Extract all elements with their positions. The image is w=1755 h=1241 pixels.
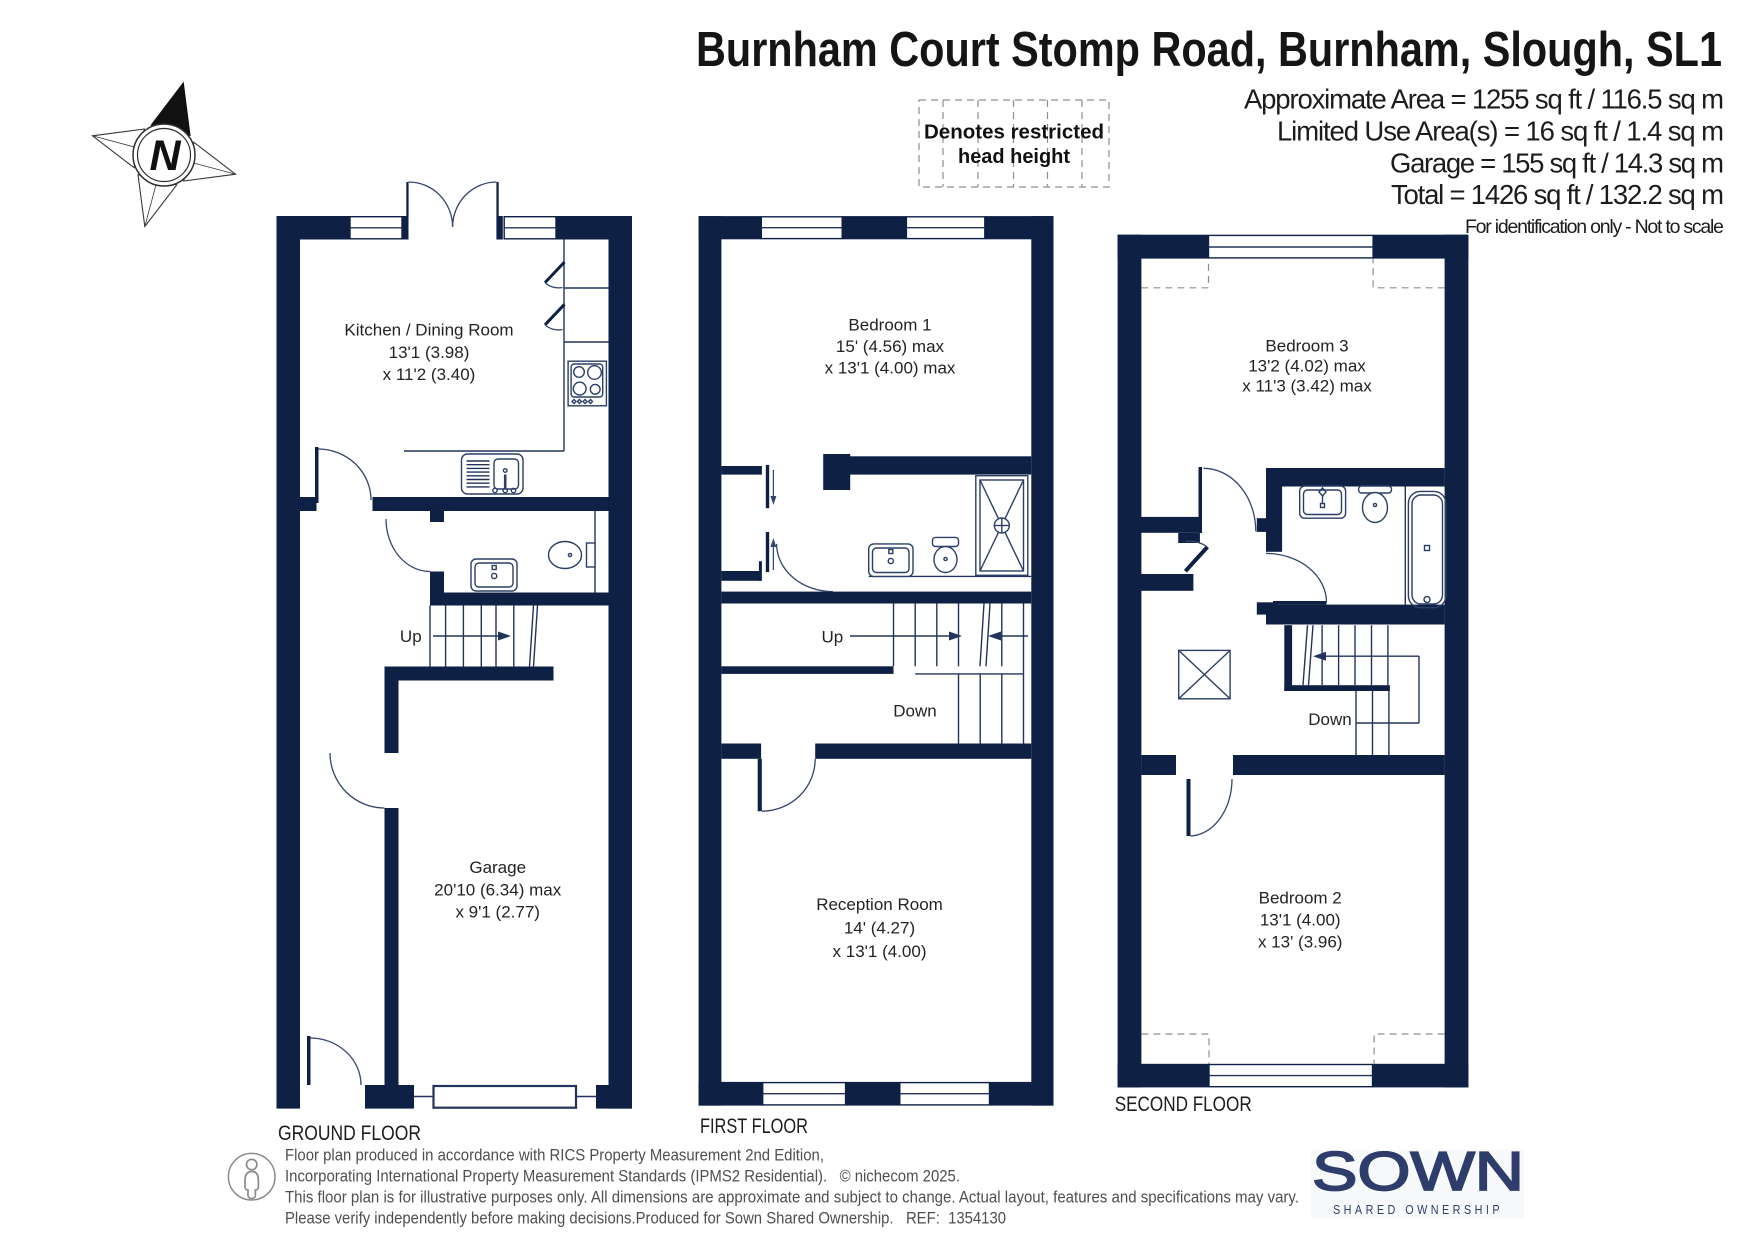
svg-text:14' (4.27): 14' (4.27): [844, 919, 915, 938]
svg-text:SHARED OWNERSHIP: SHARED OWNERSHIP: [1333, 1203, 1503, 1217]
svg-text:13'2 (4.02) max: 13'2 (4.02) max: [1248, 357, 1366, 376]
svg-text:FIRST FLOOR: FIRST FLOOR: [700, 1115, 808, 1138]
svg-text:15' (4.56) max: 15' (4.56) max: [836, 337, 945, 356]
svg-text:GROUND FLOOR: GROUND FLOOR: [278, 1122, 421, 1145]
svg-text:Down: Down: [893, 702, 936, 721]
svg-text:x 13' (3.96): x 13' (3.96): [1258, 933, 1343, 952]
svg-text:Bedroom 1: Bedroom 1: [848, 316, 931, 335]
svg-text:Kitchen / Dining Room: Kitchen / Dining Room: [344, 321, 513, 340]
svg-text:x 11'2 (3.40): x 11'2 (3.40): [383, 365, 476, 384]
svg-text:N: N: [149, 132, 181, 180]
svg-text:Bedroom 2: Bedroom 2: [1259, 889, 1342, 908]
svg-text:x 13'1 (4.00) max: x 13'1 (4.00) max: [825, 359, 956, 378]
svg-text:x 9'1 (2.77): x 9'1 (2.77): [455, 903, 540, 922]
svg-text:Up: Up: [822, 628, 844, 647]
svg-text:Limited Use Area(s) = 16 sq ft: Limited Use Area(s) = 16 sq ft / 1.4 sq …: [1277, 116, 1724, 147]
svg-text:13'1 (3.98): 13'1 (3.98): [389, 343, 470, 362]
svg-text:Garage = 155 sq ft / 14.3 sq m: Garage = 155 sq ft / 14.3 sq m: [1390, 148, 1724, 179]
svg-text:Floor plan produced in accorda: Floor plan produced in accordance with R…: [285, 1147, 824, 1165]
svg-text:Denotes restricted: Denotes restricted: [924, 122, 1104, 144]
svg-text:Reception Room: Reception Room: [816, 895, 943, 914]
svg-text:Total = 1426 sq ft / 132.2 sq: Total = 1426 sq ft / 132.2 sq m: [1391, 179, 1724, 210]
svg-text:x 13'1 (4.00): x 13'1 (4.00): [833, 942, 927, 961]
svg-text:head height: head height: [958, 146, 1070, 168]
svg-text:Garage: Garage: [469, 858, 526, 877]
svg-text:Bedroom 3: Bedroom 3: [1265, 337, 1348, 356]
svg-text:Burnham Court Stomp Road, Burn: Burnham Court Stomp Road, Burnham, Sloug…: [696, 23, 1722, 77]
svg-text:Approximate Area = 1255 sq ft: Approximate Area = 1255 sq ft / 116.5 sq…: [1244, 84, 1724, 115]
svg-text:Please verify independently be: Please verify independently before makin…: [285, 1210, 1006, 1228]
svg-text:This floor plan is for illustr: This floor plan is for illustrative purp…: [285, 1189, 1299, 1207]
svg-text:Up: Up: [400, 627, 422, 646]
svg-text:SOWN: SOWN: [1312, 1140, 1524, 1202]
svg-text:Incorporating International Pr: Incorporating International Property Mea…: [285, 1168, 960, 1186]
svg-text:Down: Down: [1308, 710, 1351, 729]
svg-text:For identification only - Not: For identification only - Not to scale: [1465, 216, 1724, 238]
svg-text:SECOND FLOOR: SECOND FLOOR: [1115, 1093, 1252, 1116]
svg-text:x 11'3 (3.42) max: x 11'3 (3.42) max: [1242, 377, 1372, 396]
svg-text:13'1 (4.00): 13'1 (4.00): [1260, 911, 1341, 930]
svg-text:20'10 (6.34) max: 20'10 (6.34) max: [434, 881, 562, 900]
